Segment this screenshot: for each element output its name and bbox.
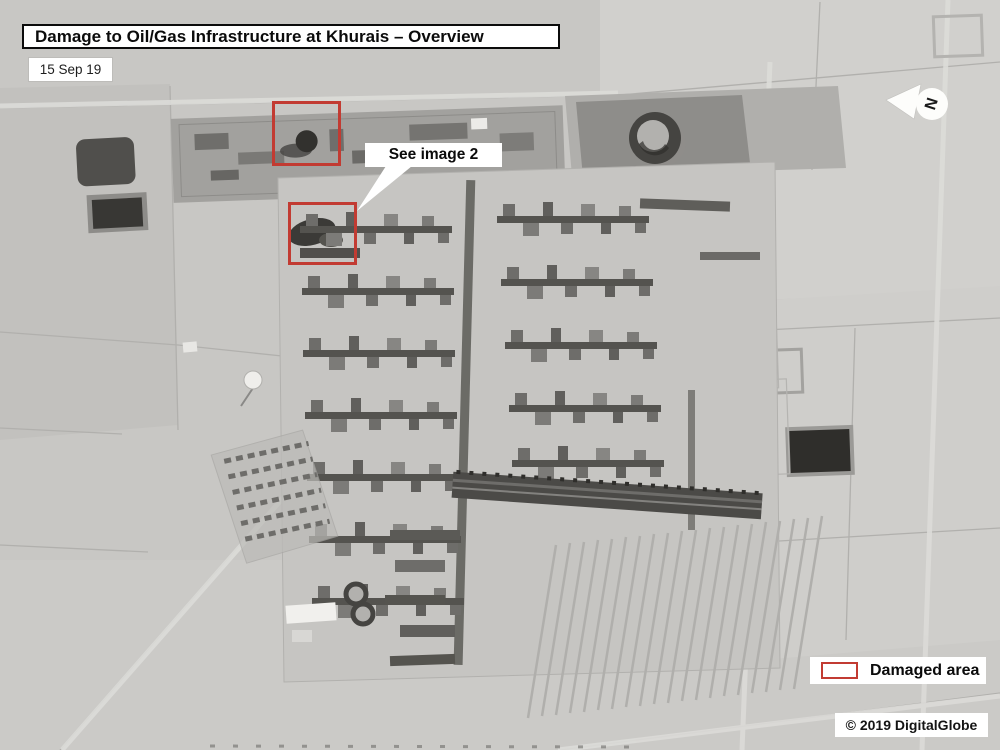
image-title: Damage to Oil/Gas Infrastructure at Khur…	[22, 24, 560, 49]
water-tower	[244, 371, 262, 389]
damaged-area-box-2	[288, 202, 357, 265]
damaged-area-swatch	[821, 662, 858, 679]
capture-date: 15 Sep 19	[28, 57, 113, 82]
legend-label: Damaged area	[870, 662, 979, 680]
legend: Damaged area	[810, 657, 986, 684]
annotated-satellite-view: N Damage to Oil/Gas Infrastructure at Kh…	[0, 0, 1000, 750]
copyright-credit: © 2019 DigitalGlobe	[835, 713, 988, 737]
white-building	[285, 602, 336, 623]
see-image-2-callout: See image 2	[365, 143, 502, 167]
satellite-image	[0, 0, 1000, 750]
damaged-area-box-1	[272, 101, 341, 166]
storage-pond-right	[787, 427, 853, 475]
